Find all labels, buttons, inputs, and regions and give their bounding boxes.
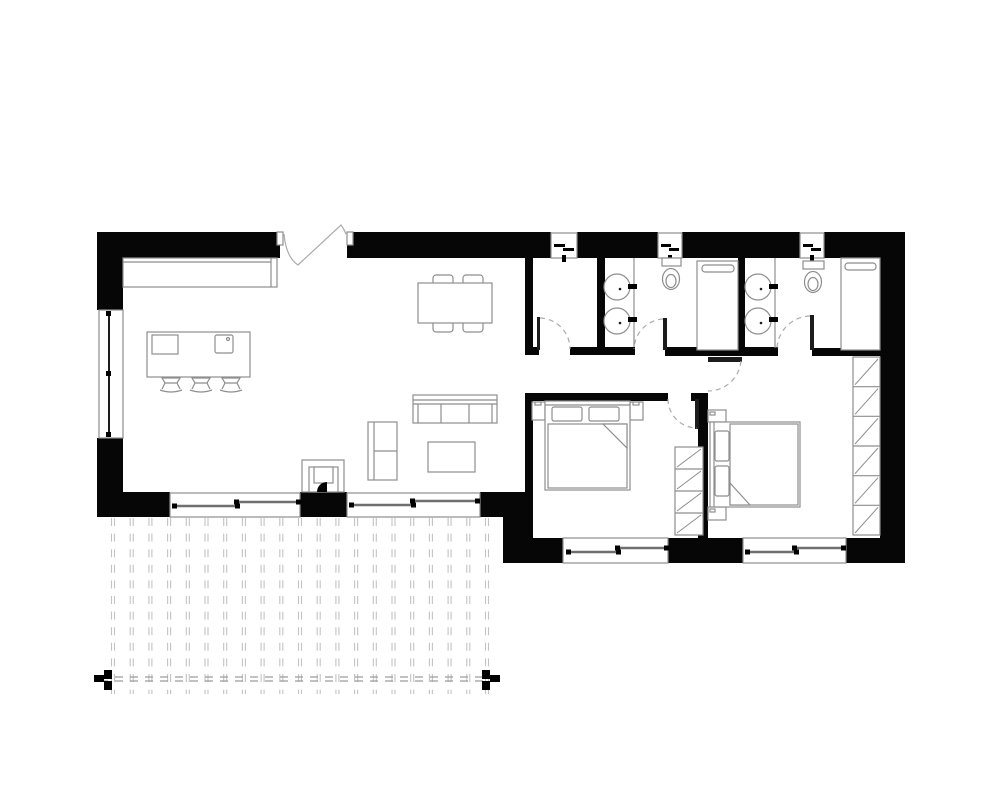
bedroom1-door-swing — [668, 399, 697, 428]
wall-bath1-bath2 — [738, 258, 745, 350]
bath2-toilet-seat — [808, 278, 818, 291]
boundary-marker-right-b — [482, 681, 490, 690]
fireplace-core — [314, 467, 333, 483]
bar-stool-1 — [160, 378, 182, 392]
entry-door-swing — [284, 225, 346, 265]
entry-jamb-right — [347, 232, 353, 245]
storage-door-swing — [540, 318, 570, 349]
boundary-marker-right-c — [490, 675, 500, 682]
wall-top-a — [97, 232, 280, 258]
bath1-shower — [697, 261, 738, 350]
bed2-pillow-b — [715, 466, 729, 496]
bath2-sink-b — [745, 308, 771, 334]
bath2-shower-head — [845, 263, 876, 270]
wall-top-b — [347, 232, 551, 258]
bath1-drain-a — [619, 288, 622, 291]
boundary-marker-left-c — [94, 675, 104, 682]
bath2-door-swing — [777, 316, 810, 348]
bar-stool-2 — [190, 378, 212, 392]
bath1-faucet-a — [628, 284, 637, 289]
bedroom2-wardrobe — [853, 357, 880, 535]
bath1-sink-a — [604, 274, 630, 300]
bath1-faucet-b — [628, 317, 637, 322]
boundary-marker-right-a — [482, 670, 490, 679]
bath2-door-leaf — [810, 315, 814, 350]
boundary-marker-left-a — [104, 670, 112, 679]
wall-south-living-a — [97, 492, 170, 517]
window-north-bath2 — [800, 233, 824, 262]
terrace — [94, 518, 500, 694]
wall-east — [880, 232, 905, 563]
wall-top-c — [577, 232, 658, 258]
bed1-pillow-a — [552, 407, 582, 421]
wall-bedroom1-north — [525, 393, 668, 401]
coffee-table — [428, 442, 475, 472]
bed1-pillow-b — [589, 407, 619, 421]
bed1-nightstand-right-lamp — [633, 402, 639, 405]
bath1-door-leaf — [663, 318, 667, 350]
entry-jamb-left — [277, 232, 283, 245]
bed2-pillow-a — [715, 431, 729, 461]
bath1-door-swing — [634, 319, 663, 349]
boundary-marker-left-b — [104, 681, 112, 690]
island-cooktop — [215, 335, 233, 353]
deck-boards — [112, 518, 489, 694]
bed2-nightstand-top-lamp — [710, 412, 715, 415]
wall-step — [503, 492, 528, 542]
bedroom2-door-swing — [708, 361, 741, 391]
bath2-sink-a — [745, 274, 771, 300]
floor-plan-svg — [0, 0, 985, 808]
wall-west-upper — [97, 232, 123, 310]
floor-plan — [0, 0, 985, 808]
wall-hall-north — [525, 258, 533, 348]
bath1-shower-head — [702, 265, 734, 272]
storage-door-leaf — [537, 317, 540, 350]
bath1-toilet-seat — [666, 275, 676, 288]
bedroom1-door-leaf — [695, 399, 699, 429]
bath2-drain-b — [760, 322, 763, 325]
window-west-stop-c — [106, 432, 111, 437]
bath2-faucet-a — [769, 284, 778, 289]
sofa — [413, 395, 497, 423]
bar-stool-3 — [220, 378, 242, 392]
bed1-nightstand-left-lamp — [535, 402, 541, 405]
wall-top-d — [682, 232, 800, 258]
bedroom1-wardrobe — [675, 447, 703, 535]
wall-south-mid — [668, 538, 743, 563]
bath2-faucet-b — [769, 317, 778, 322]
wall-south-bedroom2 — [846, 538, 905, 563]
window-north-storage — [551, 233, 577, 262]
bath1-sink-b — [604, 308, 630, 334]
window-west-stop-b — [106, 371, 111, 376]
wall-storage-south-b — [570, 347, 635, 355]
bath2-shower — [841, 258, 880, 350]
wall-south-living-b — [300, 492, 347, 517]
bath1-drain-b — [619, 322, 622, 325]
bath1-toilet-tank — [662, 258, 681, 266]
bed2-nightstand-bottom-lamp — [710, 509, 715, 512]
island-sink — [152, 335, 178, 354]
window-west-stop-a — [106, 311, 111, 316]
dining-table — [418, 283, 492, 323]
bedroom2-door-leaf — [708, 357, 742, 362]
bath2-drain-a — [760, 288, 763, 291]
wall-storage-south-a — [525, 347, 539, 355]
bath2-toilet-tank — [803, 261, 824, 269]
wall-storage-bath1 — [597, 258, 605, 353]
